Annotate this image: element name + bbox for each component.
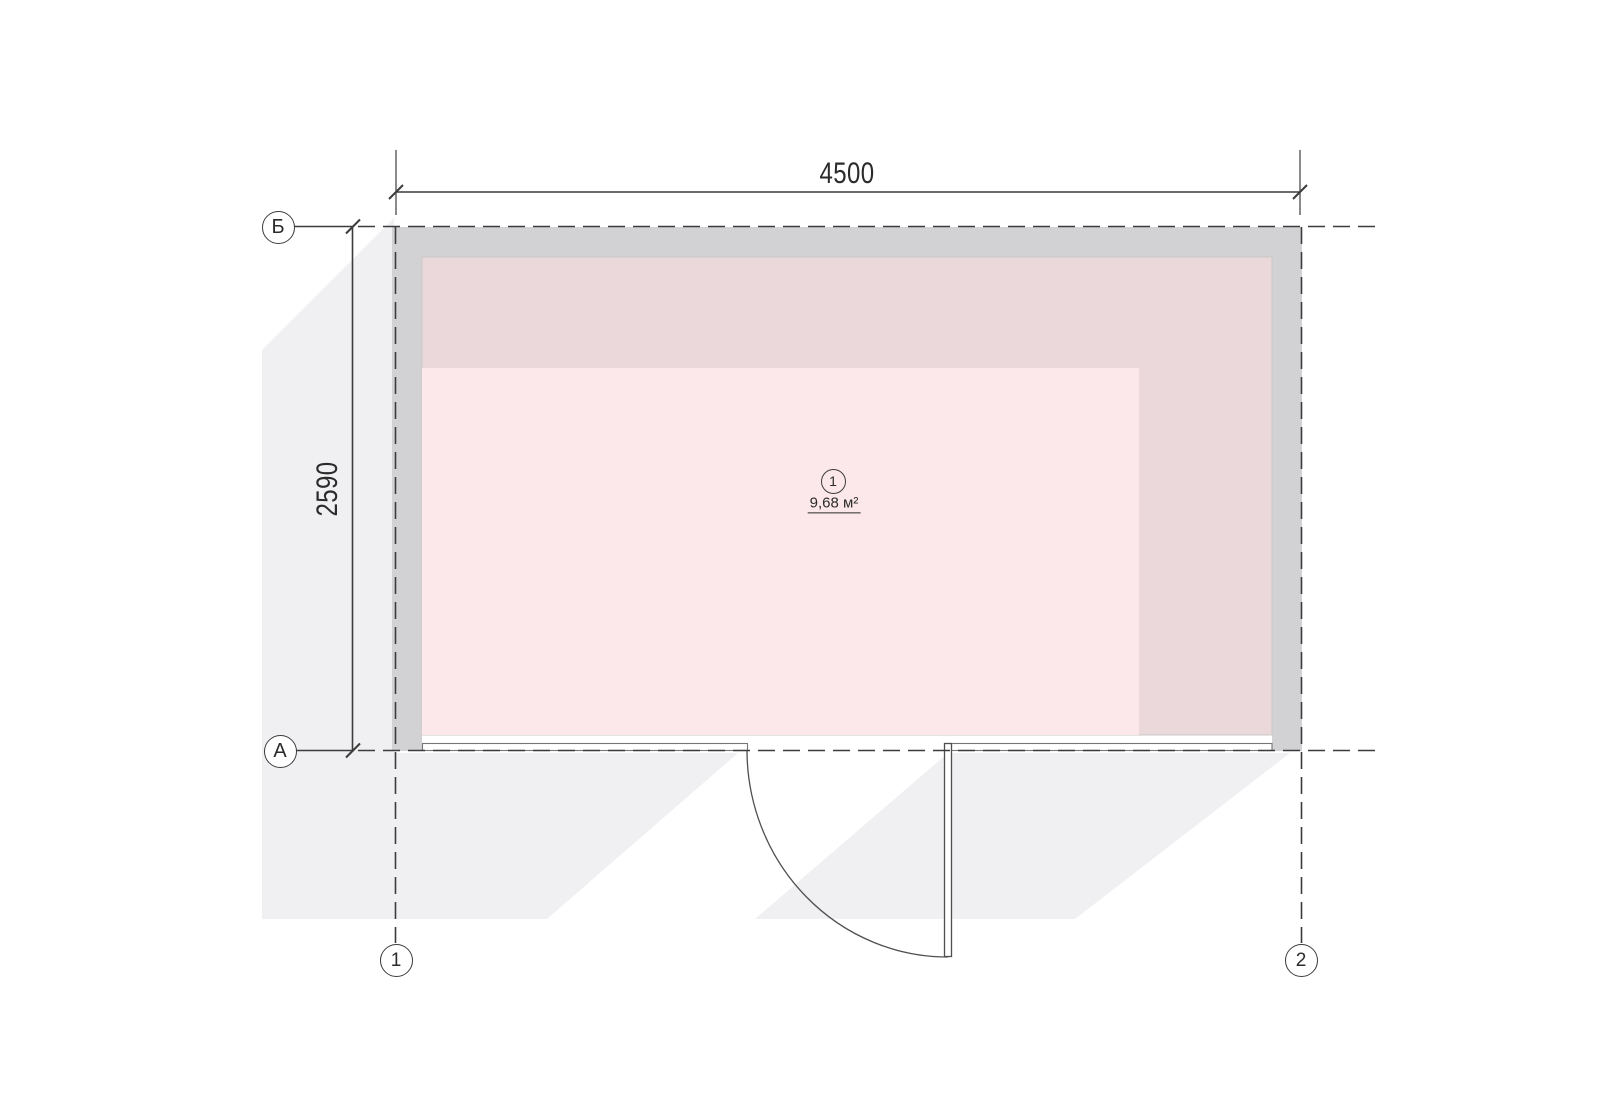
axis-marker-2-label: 2 [1296,951,1307,970]
axis-marker-1-label: 1 [391,951,402,970]
room-number-label: 1 [829,474,837,488]
axis-marker-2: 2 [1285,944,1318,977]
floor-plan-canvas: 4500 2590 Б А 1 2 1 9,68 м² [0,0,1600,1120]
axis-marker-b-label: Б [271,217,284,237]
plan-svg [0,0,1600,1120]
dimension-height-label: 2590 [313,462,343,517]
window-band-right [951,744,1273,751]
shadow-bottom-right [755,753,1290,919]
axis-marker-a: А [264,735,297,768]
axis-marker-b: Б [262,211,295,244]
dimension-width-label: 4500 [820,159,875,189]
room-number-badge: 1 [821,469,846,494]
room-floor-light [422,368,1139,735]
axis-marker-a-label: А [273,741,286,761]
bottom-wall-band [423,744,1273,751]
axis-marker-1: 1 [380,944,413,977]
room-area-label: 9,68 м² [808,494,861,513]
window-band-left [423,744,748,751]
door-leaf [945,744,952,957]
